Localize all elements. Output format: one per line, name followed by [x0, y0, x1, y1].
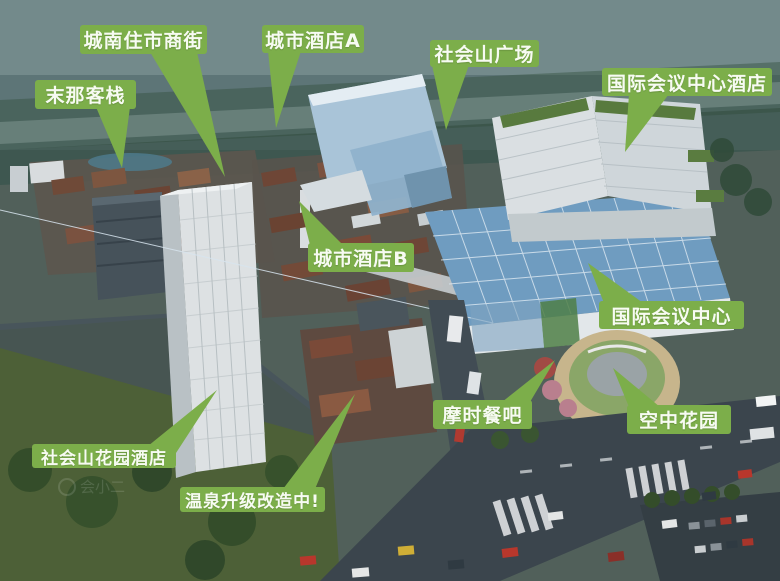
- callout-chengnan-street: 城南住市商街: [80, 25, 207, 54]
- callout-shehuishan-plaza: 社会山广场: [430, 40, 539, 67]
- callout-city-hotel-b: 城市酒店B: [308, 243, 414, 272]
- pointer-city-hotel-b: [299, 201, 343, 245]
- callout-mona-inn: 末那客栈: [35, 80, 136, 109]
- pointer-convention-center: [588, 263, 643, 303]
- pointer-shehuishan-plaza: [432, 65, 469, 130]
- pointer-hot-spring: [283, 394, 355, 489]
- callout-sky-garden: 空中花园: [627, 405, 731, 434]
- callout-convention-center: 国际会议中心: [599, 301, 744, 329]
- pointer-chengnan-street: [150, 52, 225, 177]
- callout-garden-hotel: 社会山花园酒店: [32, 444, 176, 468]
- pointer-mona-inn: [96, 107, 130, 168]
- pointer-moshi-restaurant: [502, 360, 555, 402]
- callout-city-hotel-a: 城市酒店A: [262, 25, 364, 53]
- pointer-city-hotel-a: [268, 51, 301, 128]
- callout-convention-hotel: 国际会议中心酒店: [602, 68, 772, 96]
- callout-moshi-restaurant: 摩时餐吧: [433, 400, 532, 429]
- pointer-sky-garden: [613, 368, 660, 407]
- pointer-convention-hotel: [625, 94, 669, 152]
- callout-hot-spring: 温泉升级改造中!: [180, 487, 325, 512]
- aerial-site-plan: 城南住市商街 城市酒店A 社会山广场 国际会议中心酒店 末那客栈 城市酒店B 国…: [0, 0, 780, 581]
